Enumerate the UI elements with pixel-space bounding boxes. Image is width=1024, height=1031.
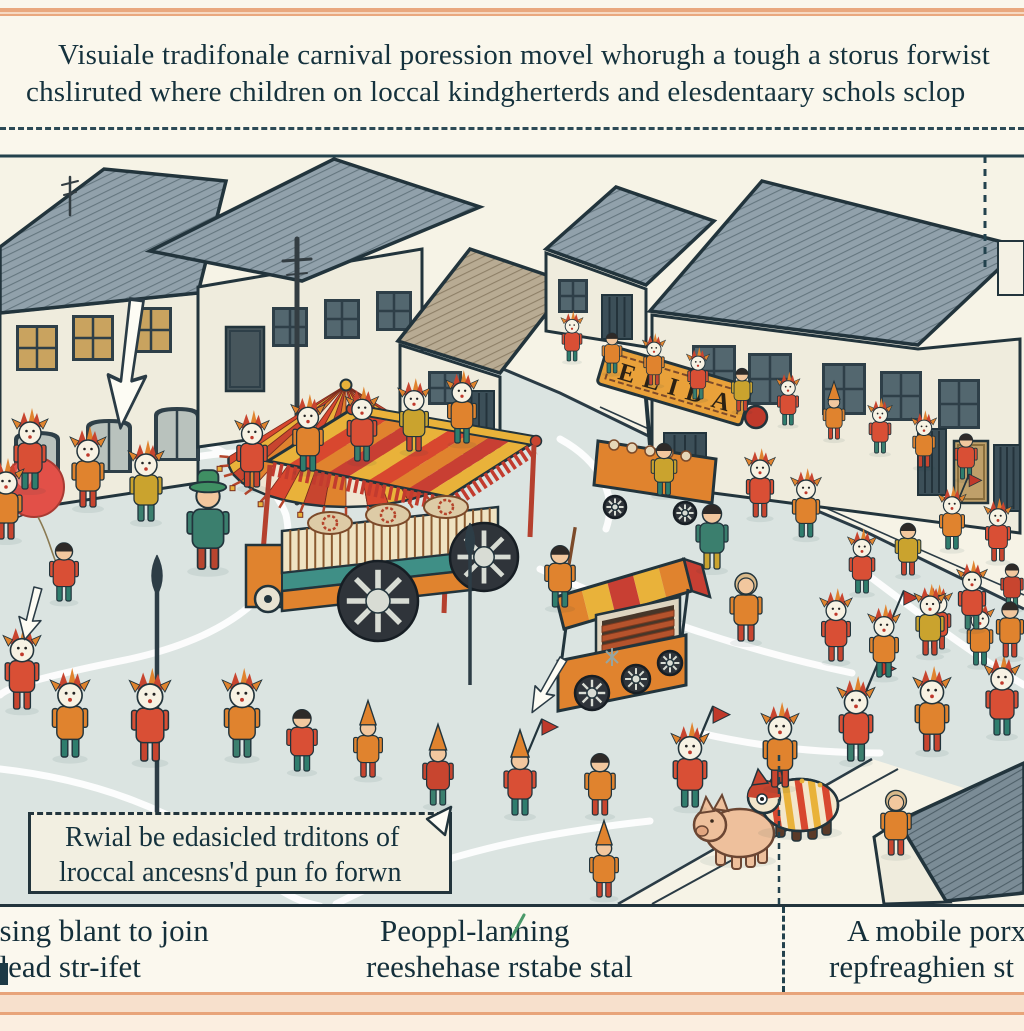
caption-right-line2: repfreaghien st — [785, 949, 1024, 985]
top-caption-line2: chsliruted where children on loccal kind… — [0, 74, 1024, 111]
scene-svg: ELIDA — [0, 154, 1024, 904]
top-caption-line1: Visuiale tradifonale carnival poression … — [0, 37, 1024, 74]
cart-wheel — [622, 665, 650, 693]
caption-left-line2: olead str-ifet — [0, 949, 360, 985]
cart-wheel — [674, 502, 696, 524]
door — [226, 327, 264, 391]
caption-left: osing blant to join olead str-ifet — [0, 907, 360, 992]
caption-right: A mobile porxk repfreaghien st — [782, 907, 1024, 992]
note-box-line1: Rwial be edasicled trditons of — [31, 815, 449, 855]
ink-chip — [0, 963, 8, 985]
cart-wheel — [338, 561, 418, 641]
top-border-band — [0, 0, 1024, 30]
dog-ear-corner — [421, 801, 461, 841]
top-caption: Visuiale tradifonale carnival poression … — [0, 30, 1024, 130]
cart-wheel — [575, 676, 609, 710]
cart-wheel — [450, 523, 518, 591]
caption-right-line1: A mobile porxk — [785, 913, 1024, 949]
carnival-poster: Visuiale tradifonale carnival poression … — [0, 0, 1024, 1024]
bottom-border-band — [0, 992, 1024, 1031]
note-box-line2: lroccal ancesns'd pun fo forwn — [31, 855, 449, 890]
illustration: ELIDA — [0, 154, 1024, 904]
cart-wheel — [604, 496, 626, 518]
caption-middle: Peoppl-lanning reeshehase rstabe stal — [360, 907, 782, 992]
caption-middle-line1: Peoppl-lanning — [360, 913, 782, 949]
cart-wheel — [658, 651, 682, 675]
caption-left-line1: osing blant to join — [0, 913, 360, 949]
note-box: Rwial be edasicled trditons of lroccal a… — [28, 812, 452, 894]
bottom-captions: osing blant to join olead str-ifet Peopp… — [0, 904, 1024, 992]
caption-middle-line2: reeshehase rstabe stal — [360, 949, 782, 985]
spacer — [0, 130, 1024, 154]
green-tick-mark — [508, 911, 528, 941]
